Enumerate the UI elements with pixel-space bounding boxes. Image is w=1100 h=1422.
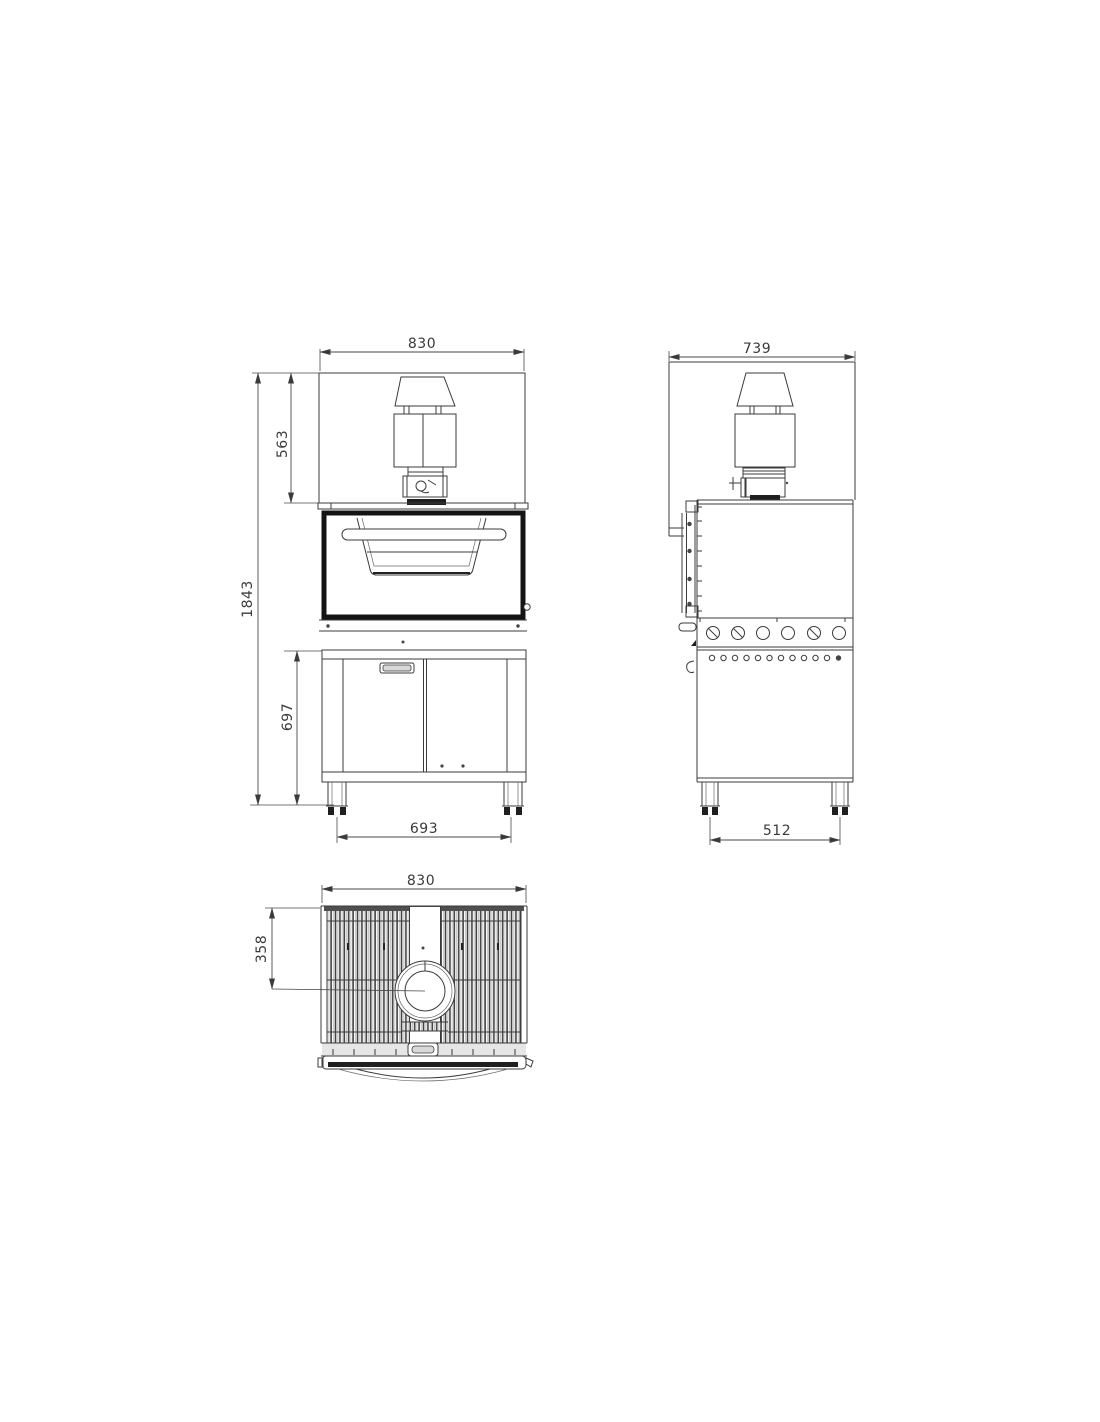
- technical-drawing-oven: 830 563 1843 697 693: [0, 0, 1100, 1422]
- cabinet-doors: [343, 659, 507, 772]
- top-right-hinge: [526, 1058, 533, 1067]
- dim-front-width: 830: [408, 336, 436, 352]
- front-view: 830 563 1843 697 693: [240, 336, 530, 843]
- side-view: 739 512: [669, 341, 855, 845]
- front-base-cabinet: [322, 650, 526, 782]
- dim-front-total-height: 1843: [240, 580, 256, 618]
- side-latch: [679, 623, 696, 631]
- top-front-edge: [318, 1043, 533, 1081]
- front-chimney: [394, 377, 456, 505]
- side-legs: [700, 782, 850, 815]
- top-flue-grate: [402, 1022, 448, 1031]
- dim-front-feet-span: 693: [410, 821, 438, 837]
- chimney-cap: [395, 377, 455, 406]
- front-shelf-band: [319, 620, 527, 644]
- damper-box: [403, 476, 447, 497]
- drawing-page: 830 563 1843 697 693: [0, 0, 1100, 1422]
- oven-pan: [357, 518, 486, 575]
- vent-small-holes: [709, 655, 841, 660]
- top-view: 830 358: [254, 873, 533, 1081]
- door-latch-knob: [524, 604, 530, 610]
- flue-body: [394, 414, 456, 467]
- dim-top-flue-offset: 358: [254, 935, 270, 963]
- chimney-cap-neck: [404, 406, 441, 414]
- dim-side-feet-span: 512: [763, 823, 791, 839]
- damper-knob: [416, 481, 426, 491]
- side-chimney: [729, 373, 795, 500]
- oven-door-handle: [342, 529, 506, 540]
- dim-front-base-height: 697: [280, 703, 296, 731]
- side-cabinet: [697, 618, 853, 782]
- front-legs: [326, 782, 524, 815]
- front-flue-enclosure: [319, 373, 525, 503]
- vent-screw-holes: [707, 627, 846, 640]
- side-oven-body: [697, 500, 853, 782]
- dim-top-width: 830: [407, 873, 435, 889]
- door-swing-arc-inner: [356, 1069, 490, 1078]
- front-dimensions: 830 563 1843 697 693: [240, 336, 524, 843]
- side-door-hook: [687, 661, 694, 673]
- side-damper-box: [745, 478, 785, 497]
- dim-side-depth: 739: [743, 341, 771, 357]
- side-vent-band: [697, 618, 853, 661]
- flue-collar: [407, 499, 446, 505]
- front-oven-door: [324, 513, 530, 617]
- dim-front-flue-height: 563: [275, 430, 291, 458]
